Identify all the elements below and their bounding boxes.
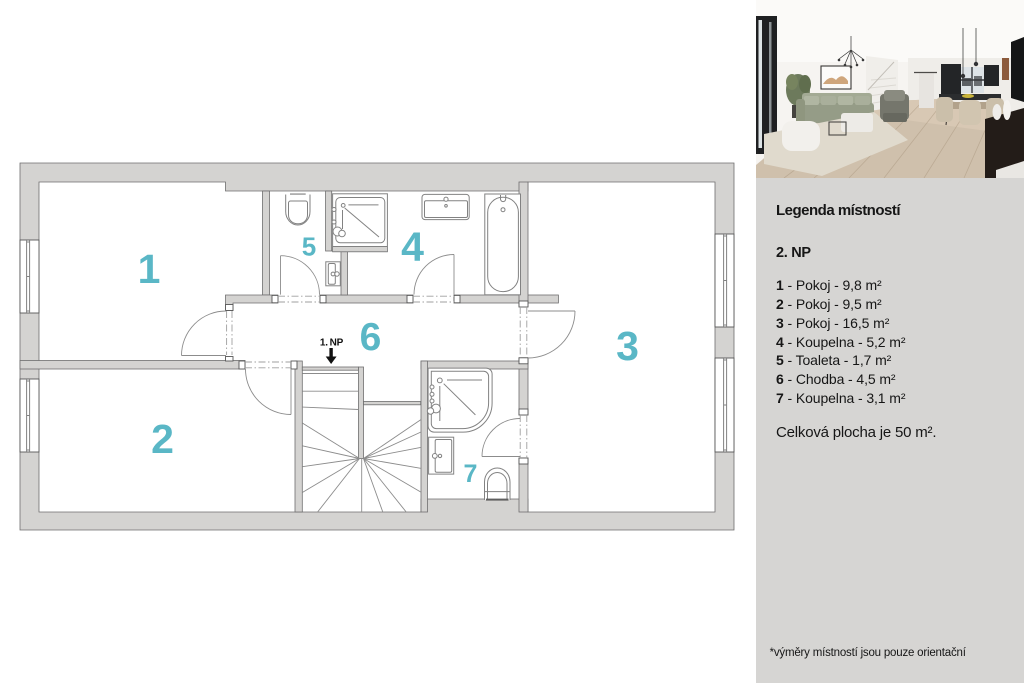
svg-text:3: 3	[616, 323, 639, 369]
svg-text:2: 2	[151, 416, 174, 462]
svg-text:6: 6	[360, 316, 382, 359]
svg-text:1: 1	[138, 246, 161, 292]
svg-text:5: 5	[302, 232, 316, 262]
svg-text:1. NP: 1. NP	[320, 338, 344, 349]
svg-text:7: 7	[464, 460, 478, 488]
svg-text:4: 4	[401, 224, 424, 270]
